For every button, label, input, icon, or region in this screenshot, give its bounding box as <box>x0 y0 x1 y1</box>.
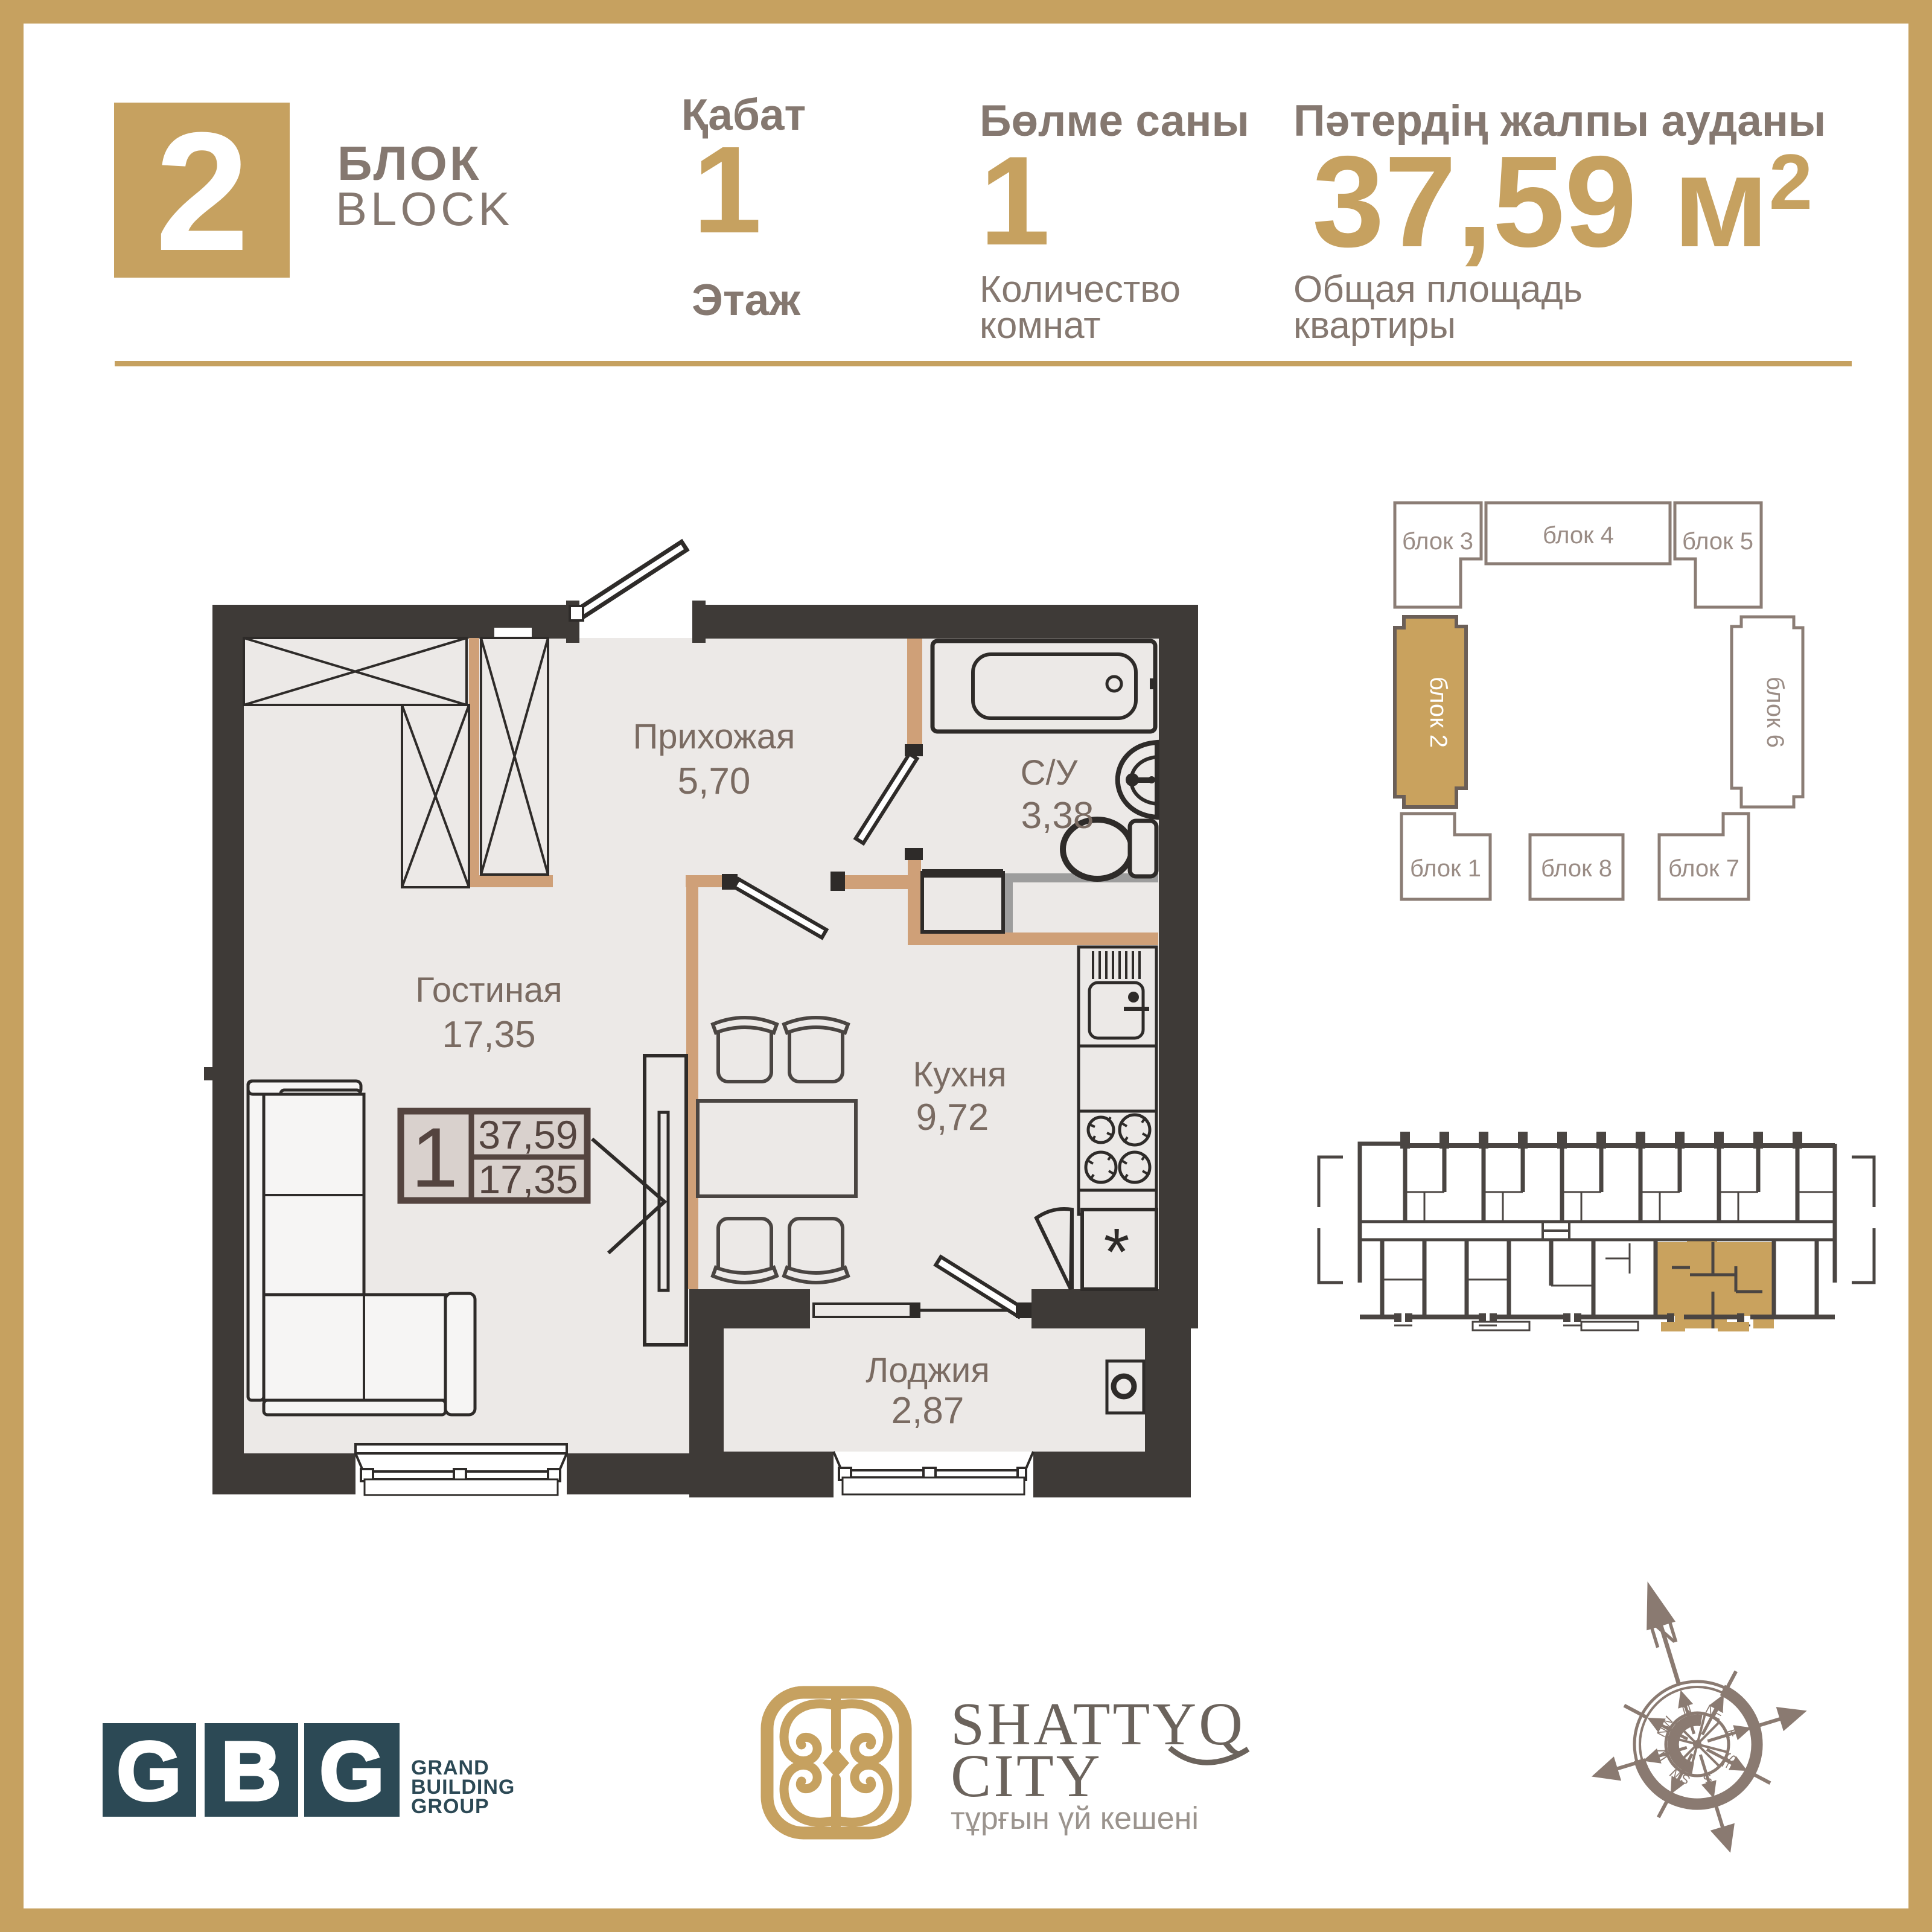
svg-text:1: 1 <box>693 121 762 259</box>
svg-text:G: G <box>319 1725 384 1818</box>
svg-text:блок 2: блок 2 <box>1425 677 1452 748</box>
svg-text:37,59: 37,59 <box>478 1112 578 1157</box>
svg-text:Количество: Количество <box>980 269 1181 310</box>
svg-text:Прихожая: Прихожая <box>633 717 795 756</box>
svg-text:квартиры: квартиры <box>1293 305 1456 346</box>
svg-text:1: 1 <box>980 130 1050 272</box>
svg-text:Гостиная: Гостиная <box>415 971 562 1010</box>
svg-text:блок 8: блок 8 <box>1541 855 1612 882</box>
svg-text:блок 6: блок 6 <box>1762 677 1788 748</box>
svg-text:блок 5: блок 5 <box>1682 528 1753 555</box>
svg-text:1: 1 <box>411 1110 458 1205</box>
svg-text:блок 3: блок 3 <box>1402 528 1473 555</box>
svg-text:*: * <box>1104 1215 1130 1289</box>
svg-text:тұрғын үй кешені: тұрғын үй кешені <box>951 1801 1199 1836</box>
svg-text:9,72: 9,72 <box>916 1097 989 1138</box>
svg-text:Кухня: Кухня <box>913 1055 1006 1094</box>
svg-text:5,70: 5,70 <box>678 760 751 802</box>
svg-text:2,87: 2,87 <box>891 1390 964 1432</box>
svg-text:блок 1: блок 1 <box>1410 855 1481 882</box>
svg-text:комнат: комнат <box>980 305 1101 346</box>
svg-text:блок 7: блок 7 <box>1668 855 1739 882</box>
svg-text:37,59 м2: 37,59 м2 <box>1312 129 1812 274</box>
svg-text:Общая площадь: Общая площадь <box>1293 269 1583 310</box>
svg-text:2: 2 <box>155 98 249 286</box>
svg-text:G: G <box>116 1725 181 1818</box>
svg-text:3,38: 3,38 <box>1021 795 1094 837</box>
svg-text:17,35: 17,35 <box>478 1157 578 1202</box>
svg-text:CITY: CITY <box>951 1742 1103 1809</box>
svg-text:блок 4: блок 4 <box>1543 522 1614 549</box>
svg-text:BLOCK: BLOCK <box>336 182 513 235</box>
svg-text:Лоджия: Лоджия <box>866 1351 990 1390</box>
svg-text:Этаж: Этаж <box>692 276 801 325</box>
svg-text:С/У: С/У <box>1021 753 1079 792</box>
svg-text:17,35: 17,35 <box>442 1014 535 1056</box>
svg-text:GROUP: GROUP <box>411 1795 489 1818</box>
svg-text:B: B <box>221 1725 281 1818</box>
